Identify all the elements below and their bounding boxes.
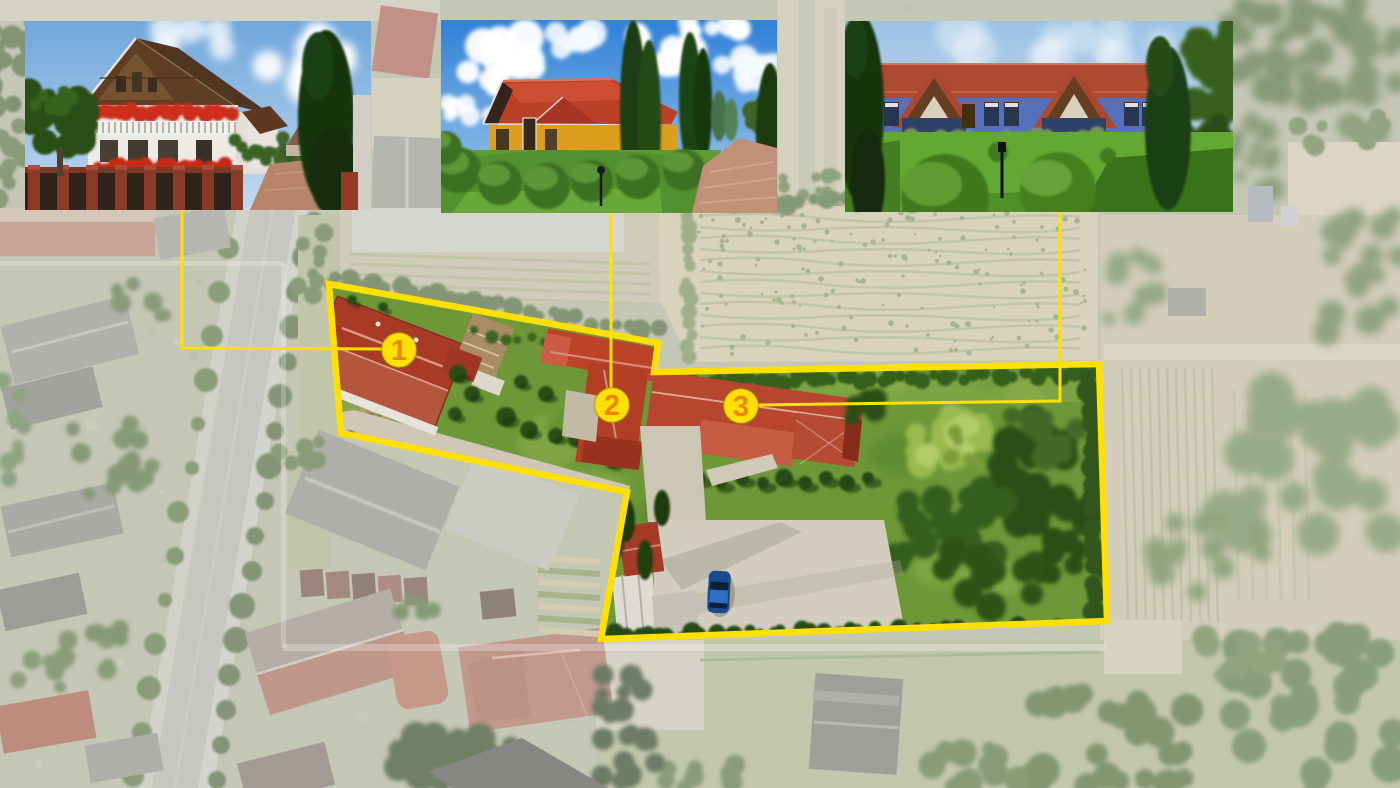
svg-text:3: 3 — [733, 391, 749, 423]
svg-text:1: 1 — [391, 335, 407, 367]
svg-text:2: 2 — [604, 390, 620, 422]
